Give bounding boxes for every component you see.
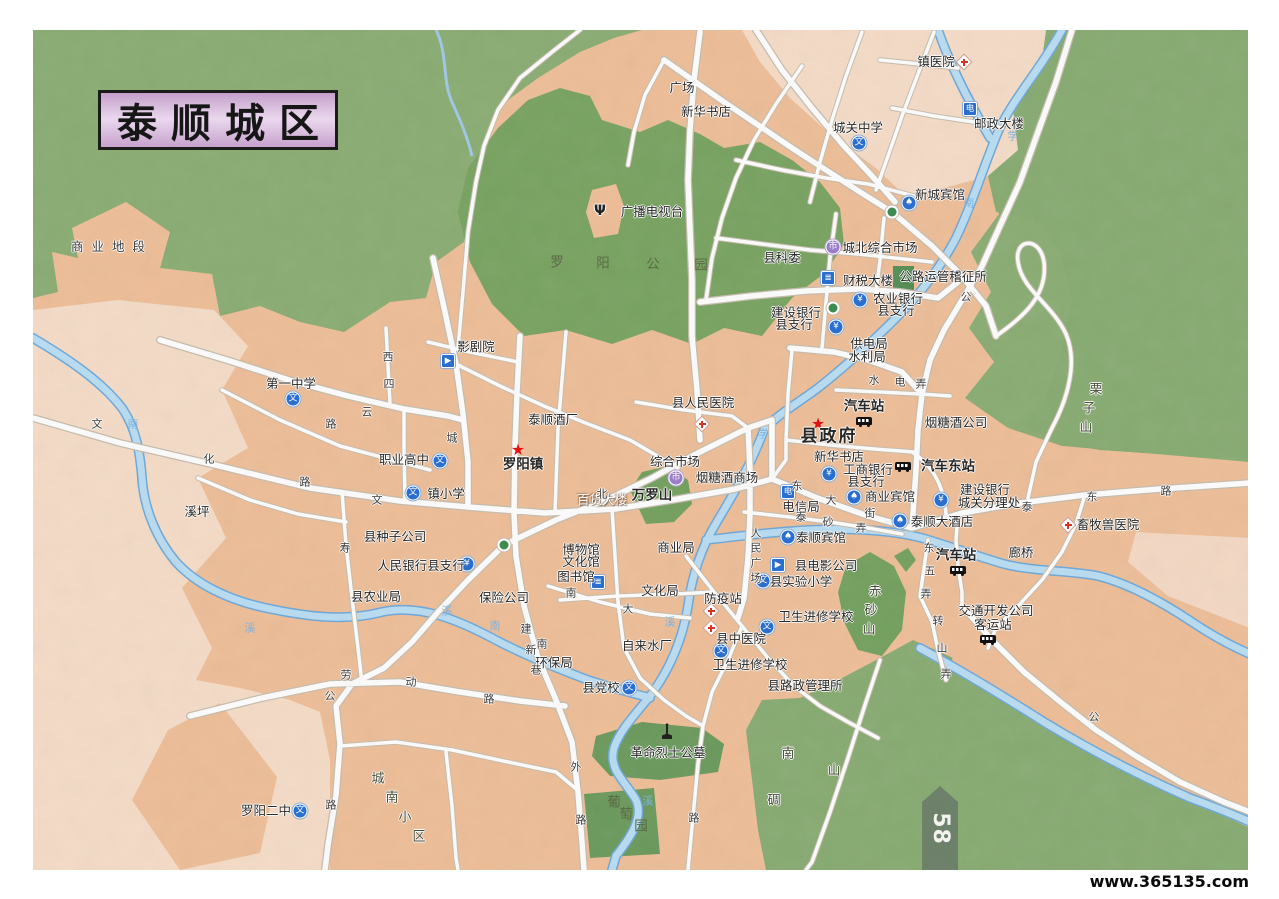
road-label: 东 — [924, 543, 935, 554]
map-label: 阳 — [596, 257, 610, 271]
map-label: 县支行 — [877, 305, 915, 318]
map-label: 城关分理处 — [958, 497, 1021, 510]
map-label: 县种子公司 — [364, 531, 427, 544]
bank-icon: ¥ — [934, 493, 949, 508]
page-number-marker: 58 — [922, 786, 958, 870]
map-label: 泰顺宾馆 — [796, 532, 846, 545]
map-label: 县政府 — [801, 429, 858, 446]
map-label: 栗 — [1089, 384, 1102, 397]
road-label: 转 — [933, 616, 944, 627]
road-label: 路 — [300, 477, 311, 488]
road-label: 弄 — [921, 589, 932, 600]
map-label: 城北综合市场 — [842, 242, 917, 255]
school-icon: 文 — [852, 136, 867, 151]
school-icon: 文 — [406, 486, 421, 501]
road-label: 文 — [92, 419, 103, 430]
road-label: 路 — [576, 815, 587, 826]
road-label: 城 — [447, 433, 458, 444]
map-label: 文化馆 — [562, 556, 600, 569]
map-label: 山 — [862, 624, 875, 637]
map-label: 子 — [1082, 403, 1095, 416]
road-label: 东 — [1087, 492, 1098, 503]
map-label: 城关中学 — [833, 122, 883, 135]
map-label: 山 — [827, 765, 840, 778]
map-label: 财税大楼 — [843, 275, 893, 288]
map-label: 新城宾馆 — [915, 189, 965, 202]
map-label: 南 — [385, 792, 398, 805]
school-icon: 文 — [286, 392, 301, 407]
map-label: 县实验小学 — [770, 576, 833, 589]
map-label: 影剧院 — [457, 341, 495, 354]
map-label: 公 — [646, 258, 660, 272]
postal-icon: 电 — [963, 102, 977, 116]
road-label: 路 — [689, 813, 700, 824]
road-label: 大 — [826, 495, 837, 506]
map-label: 畜牧兽医院 — [1077, 519, 1140, 532]
road-label: 街 — [865, 508, 876, 519]
market-icon: 市 — [669, 471, 684, 486]
book-icon: ≣ — [821, 271, 835, 285]
map-label: 赤 — [868, 586, 881, 599]
map-label: 革命烈士公墓 — [630, 747, 705, 760]
map-label: 县科委 — [763, 252, 801, 265]
road-label: 化 — [204, 454, 215, 465]
river-label: 南 — [490, 621, 501, 632]
cinema-icon: ▶ — [441, 354, 455, 368]
map-label: 城 — [371, 773, 384, 786]
road-label: 五 — [925, 566, 936, 577]
river-label: 溪 — [245, 623, 256, 634]
school-icon: 文 — [433, 454, 448, 469]
map-label: 新华书店 — [681, 106, 731, 119]
river-label: 学 — [1008, 131, 1019, 142]
map-label: 县电影公司 — [795, 560, 858, 573]
road-label: 四 — [384, 379, 395, 390]
map-label: 自来水厂 — [622, 640, 672, 653]
map-label: 罗阳镇 — [503, 458, 544, 472]
school-icon: 文 — [293, 804, 308, 819]
map-label: 县路政管理所 — [767, 680, 842, 693]
river-label: 溪 — [665, 617, 676, 628]
river-label: 溪 — [442, 606, 453, 617]
river-label: 溪 — [643, 796, 654, 807]
map-label: 邮政大楼 — [974, 118, 1024, 131]
road-label: 外 — [571, 762, 582, 773]
road-label: 路 — [1161, 486, 1172, 497]
map-label: 广播电视台 — [621, 206, 684, 219]
map-label: 小 — [398, 812, 411, 825]
road-label: 弄 — [941, 669, 952, 680]
map-label: 公路运管稽征所 — [899, 271, 987, 284]
road-label: 北 — [597, 489, 608, 500]
roundabout-icon — [886, 206, 899, 219]
map-label: 泰顺酒厂 — [528, 414, 578, 427]
map-label: 卫生进修学校 — [778, 611, 853, 624]
map-label: 县支行 — [775, 319, 813, 332]
road-label: 水 — [869, 375, 880, 386]
map-label: 汽车东站 — [921, 460, 975, 474]
road-label: 人 — [751, 528, 762, 539]
river-label: 南 — [964, 198, 975, 209]
map-label: 商业地段 — [71, 241, 153, 254]
map-label: 汽车站 — [936, 549, 977, 563]
river-label: 南 — [128, 419, 139, 430]
map-label: 县农业局 — [351, 591, 401, 604]
road-label: 电 — [895, 377, 906, 388]
map-label: 园 — [694, 259, 708, 273]
map-label: 罗 — [550, 256, 564, 270]
school-icon: 文 — [622, 681, 637, 696]
map-label: 萄 — [619, 808, 633, 822]
road-label: 南 — [566, 588, 577, 599]
map-title-box: 泰顺城区 — [98, 90, 338, 150]
map-label: 商业宾馆 — [865, 491, 915, 504]
page-number: 58 — [928, 812, 953, 845]
road-label: 路 — [326, 800, 337, 811]
map-label: 县支行 — [847, 476, 885, 489]
map-label: 图书馆 — [557, 571, 595, 584]
map-label: 烟糖酒商场 — [696, 472, 759, 485]
road-label: 云 — [362, 407, 373, 418]
road-label: 劳 — [341, 670, 352, 681]
map-label: 万罗山 — [632, 489, 673, 503]
road-label: 东 — [792, 481, 803, 492]
hotel-icon: ♠ — [893, 514, 908, 529]
bank-icon: ¥ — [822, 467, 837, 482]
watermark-url: www.365135.com — [1090, 872, 1249, 891]
map-label: 汽车站 — [844, 400, 885, 414]
road-label: 泰 — [796, 512, 807, 523]
bank-icon: ¥ — [829, 320, 844, 335]
bank-icon: ¥ — [853, 293, 868, 308]
market-icon: 市 — [826, 240, 841, 255]
road-label: 砂 — [823, 517, 834, 528]
road-label: 文 — [372, 495, 383, 506]
map-label: 区 — [412, 831, 425, 844]
bus-icon — [950, 566, 966, 574]
map-label: 客运站 — [974, 619, 1012, 632]
map-label: 保险公司 — [479, 592, 529, 605]
antenna-icon: Ψ — [594, 204, 606, 218]
map-label: 烟糖酒公司 — [925, 417, 988, 430]
map-label: 碉 — [767, 795, 780, 808]
road-label: 民 — [751, 543, 762, 554]
bus-icon — [980, 635, 996, 643]
roundabout-icon — [498, 539, 511, 552]
map-page: 泰顺城区 58 www.365135.com 商业地段广场新华书店镇医院城关中学… — [0, 0, 1279, 899]
hotel-icon: ♠ — [847, 490, 862, 505]
road-label: 大 — [623, 604, 634, 615]
map-label: 第一中学 — [266, 378, 316, 391]
map-label: 南 — [781, 748, 794, 761]
map-label: 水利局 — [848, 351, 886, 364]
roundabout-icon — [827, 302, 840, 315]
map-label: 县党校 — [582, 682, 620, 695]
road-label: 建 — [521, 624, 532, 635]
map-label: 园 — [634, 820, 648, 834]
road-label: 弄 — [916, 379, 927, 390]
map-label: 泰顺大酒店 — [911, 516, 974, 529]
map-label: 人民银行县支行 — [377, 560, 465, 573]
map-label: 文化局 — [641, 585, 679, 598]
road-label: 西 — [383, 352, 394, 363]
map-label: 县人民医院 — [672, 397, 735, 410]
map-label: 廊桥 — [1008, 547, 1033, 560]
road-label: 山 — [937, 643, 948, 654]
map-label: 防疫站 — [704, 593, 742, 606]
map-label: 罗阳二中 — [241, 805, 291, 818]
road-label: 路 — [326, 419, 337, 430]
cinema-icon: ▶ — [771, 558, 785, 572]
map-label: 县中医院 — [716, 633, 766, 646]
bus-icon — [856, 417, 872, 425]
road-label: 公 — [325, 691, 336, 702]
map-label: 镇小学 — [427, 488, 465, 501]
road-label: 南 — [537, 639, 548, 650]
map-title: 泰顺城区 — [117, 91, 333, 149]
map-label: 综合市场 — [650, 456, 700, 469]
road-label: 巷 — [531, 665, 542, 676]
map-label: 山 — [1079, 422, 1092, 435]
map-label: 砂 — [864, 605, 877, 618]
road-label: 泰 — [1022, 502, 1033, 513]
map-label: 卫生进修学校 — [712, 659, 787, 672]
road-label: 动 — [406, 677, 417, 688]
road-label: 寿 — [340, 543, 351, 554]
road-label: 弄 — [856, 523, 867, 534]
map-label: 职业高中 — [379, 454, 429, 467]
road-label: 路 — [484, 694, 495, 705]
road-label: 公 — [1089, 712, 1100, 723]
road-label: 新 — [526, 645, 537, 656]
road-label: 公 — [961, 292, 972, 303]
map-label: 溪坪 — [184, 506, 209, 519]
map-label: 交通开发公司 — [958, 605, 1033, 618]
map-label: 商业局 — [657, 542, 695, 555]
bus-icon — [895, 462, 911, 470]
river-label: 学 — [758, 429, 769, 440]
road-label: 广 — [751, 558, 762, 569]
map-label: 镇医院 — [917, 56, 955, 69]
road-label: 场 — [751, 573, 762, 584]
hotel-icon: ♠ — [781, 530, 796, 545]
map-label: 广场 — [669, 82, 694, 95]
